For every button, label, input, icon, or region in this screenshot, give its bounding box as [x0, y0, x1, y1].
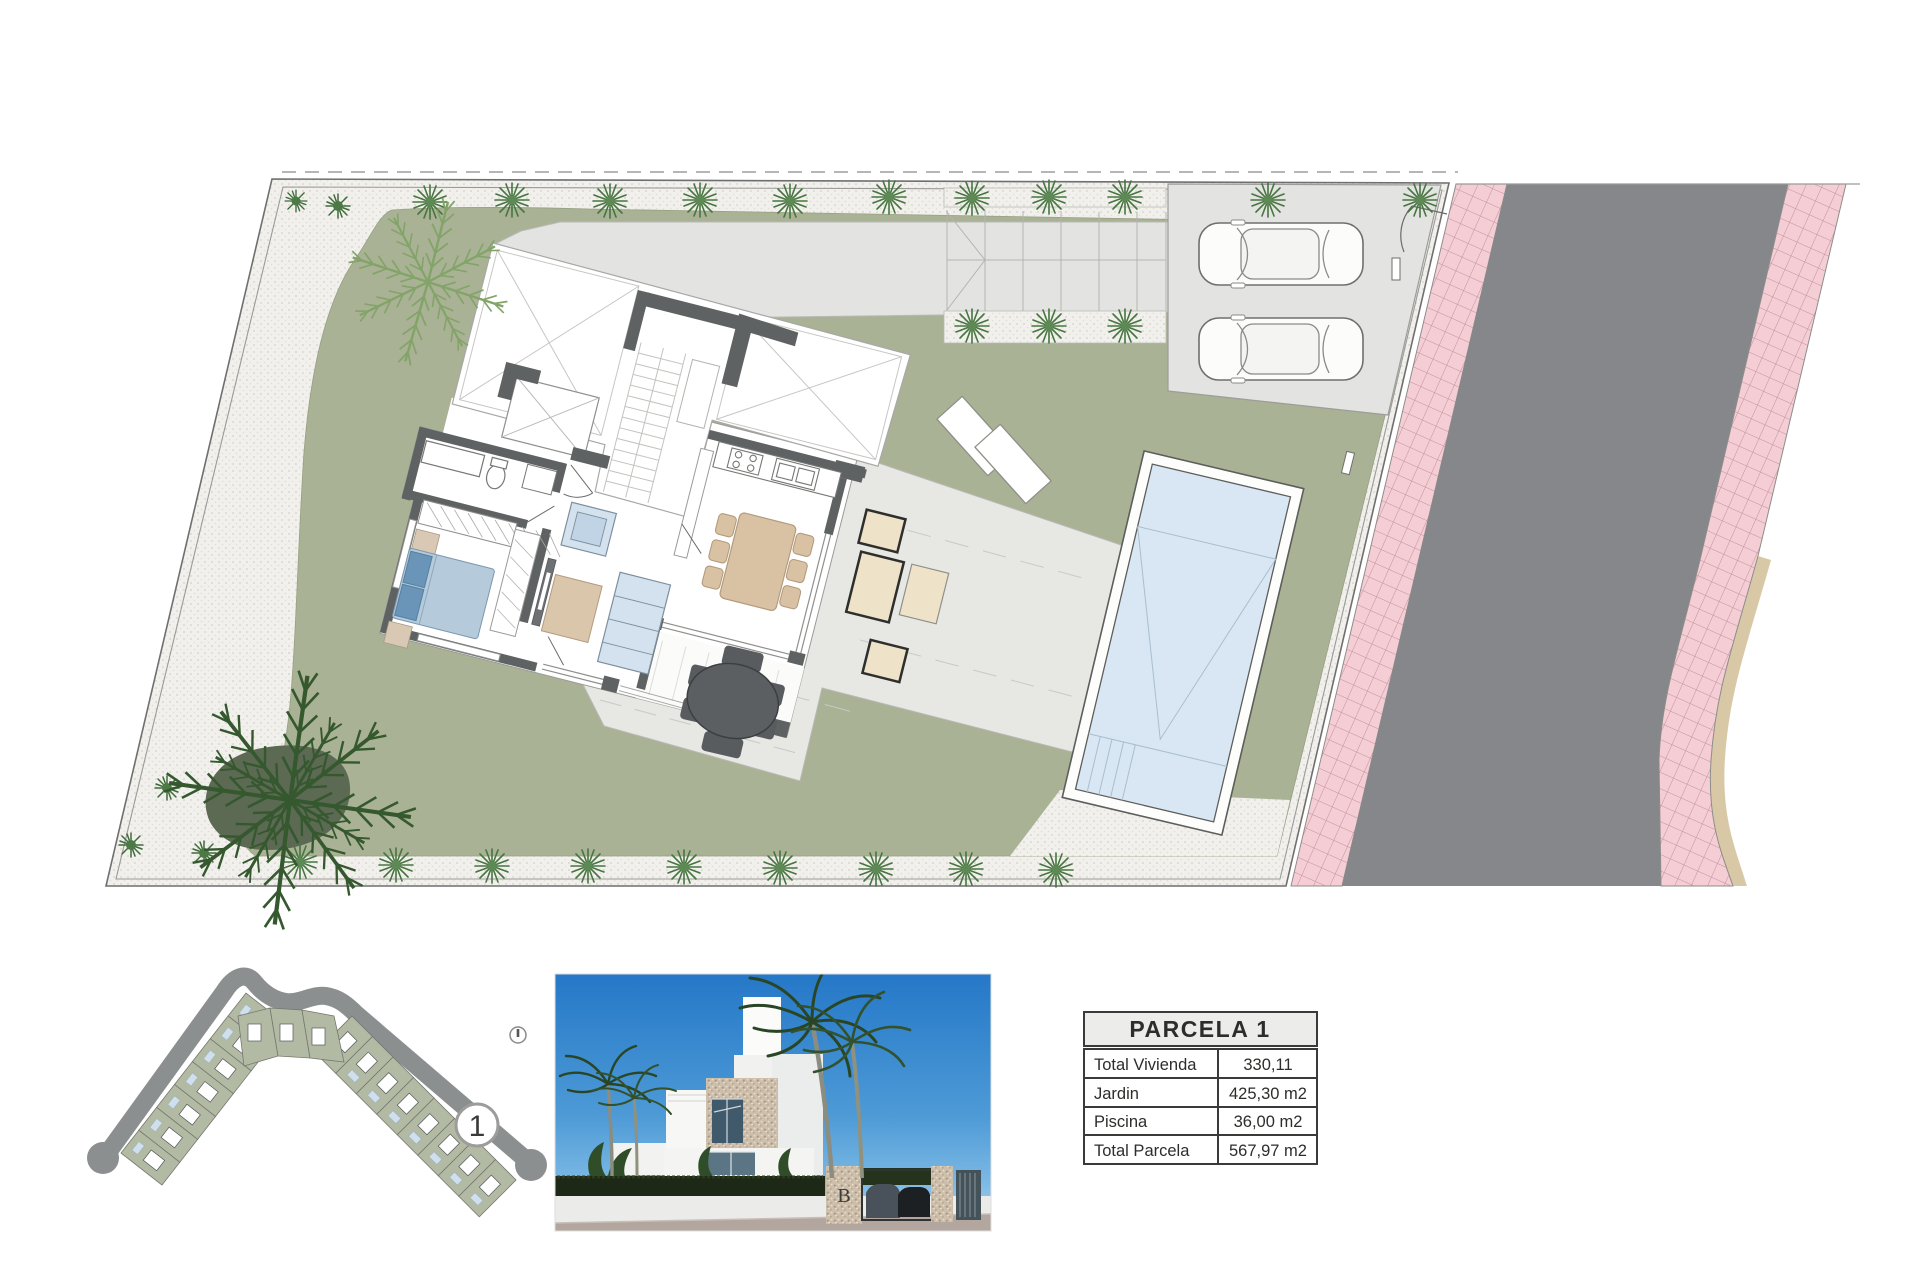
svg-text:Piscina: Piscina [1094, 1113, 1148, 1131]
svg-text:330,11: 330,11 [1243, 1056, 1292, 1074]
svg-text:PARCELA 1: PARCELA 1 [1129, 1016, 1270, 1042]
svg-text:425,30 m2: 425,30 m2 [1229, 1085, 1307, 1103]
svg-text:B: B [837, 1185, 850, 1207]
svg-text:Jardin: Jardin [1094, 1085, 1139, 1103]
svg-text:1: 1 [469, 1110, 486, 1143]
svg-text:Total Parcela: Total Parcela [1094, 1142, 1190, 1160]
svg-text:567,97 m2: 567,97 m2 [1229, 1142, 1307, 1160]
svg-text:Total Vivienda: Total Vivienda [1094, 1056, 1197, 1074]
svg-text:36,00 m2: 36,00 m2 [1234, 1113, 1303, 1131]
